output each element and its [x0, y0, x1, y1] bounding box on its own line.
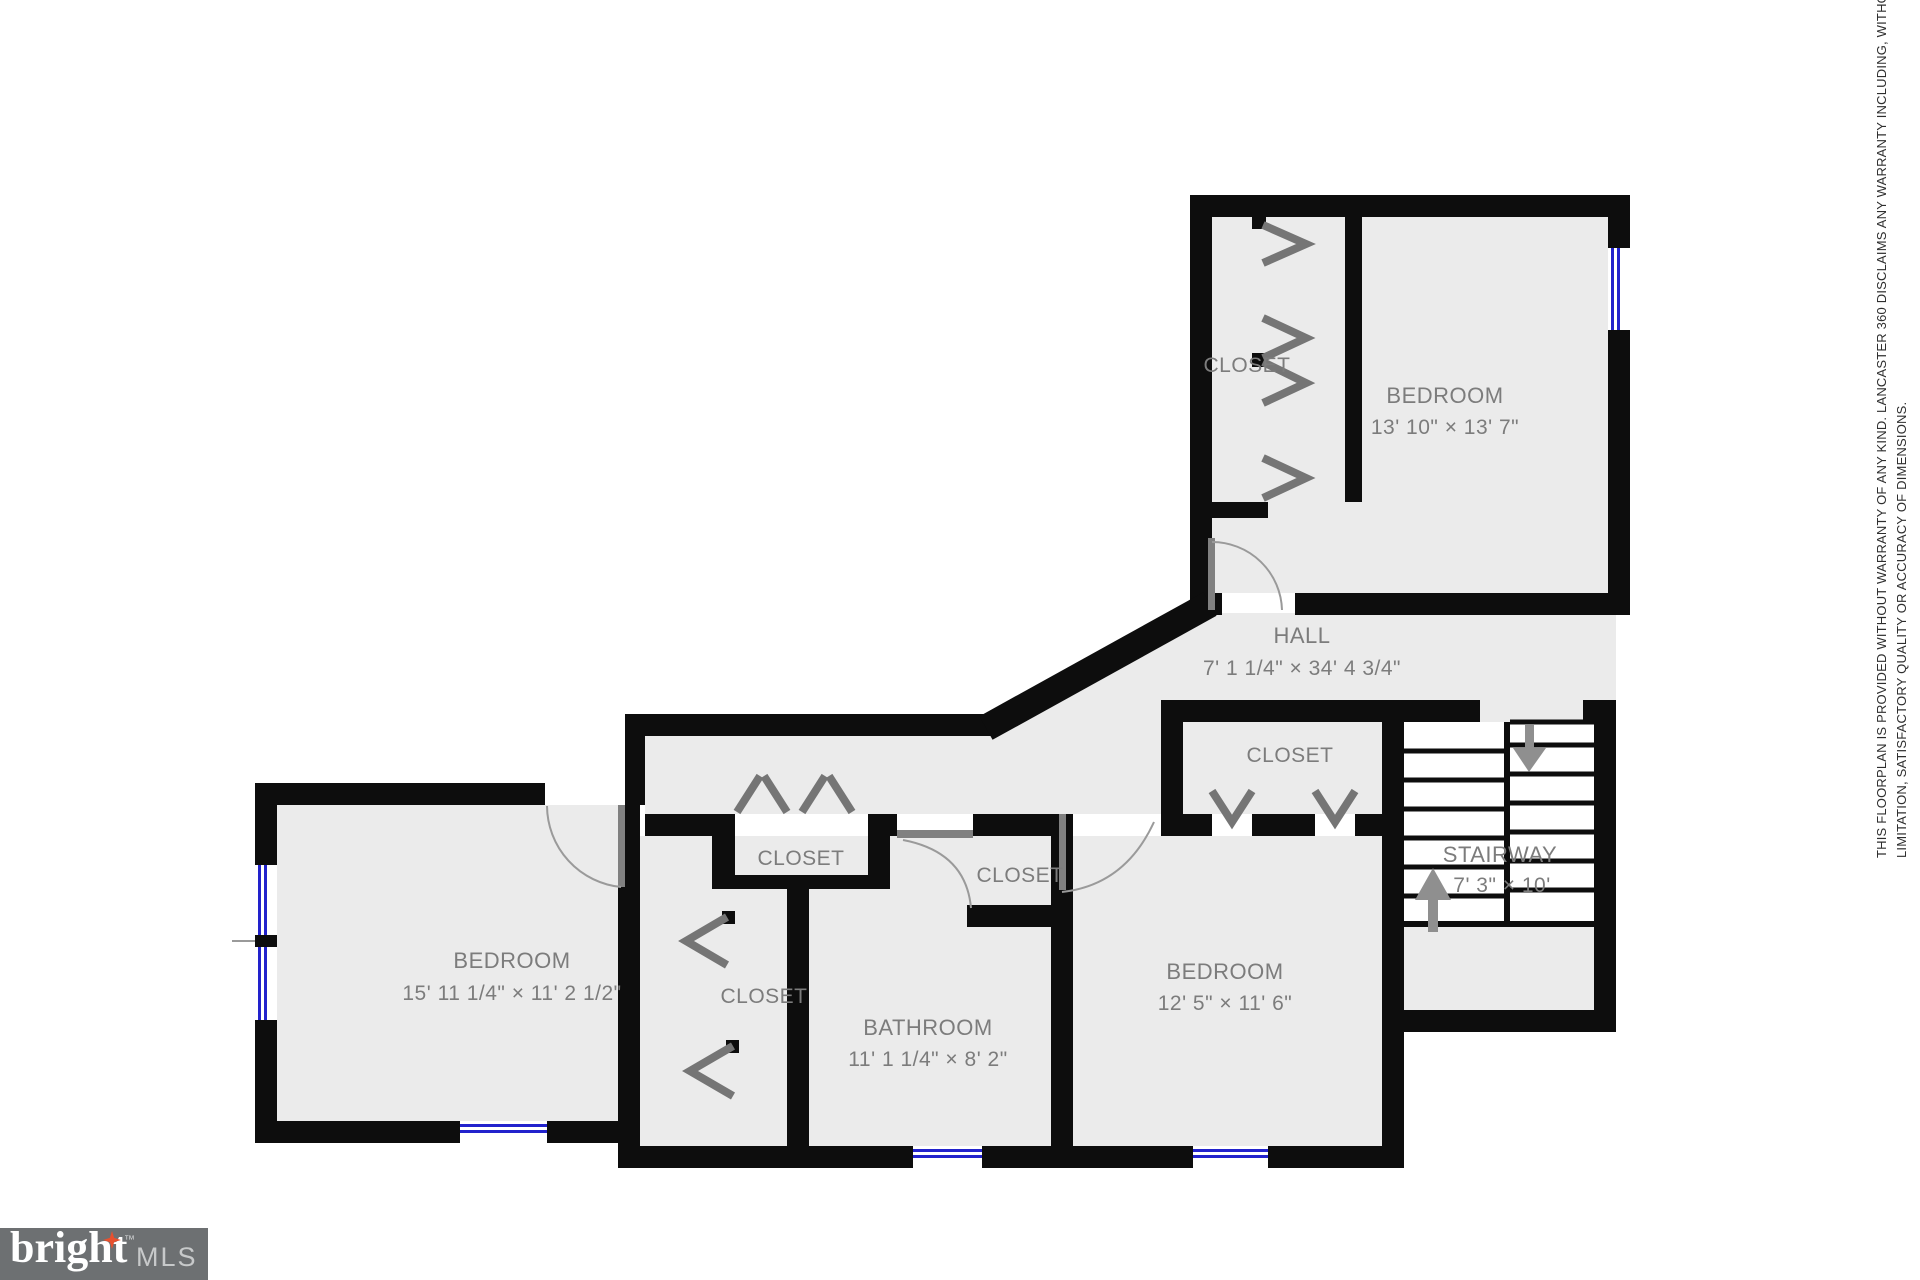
bright-mls-logo: bright ™ MLS	[0, 1228, 208, 1280]
disclaimer-line-1: THIS FLOORPLAN IS PROVIDED WITHOUT WARRA…	[1874, 0, 1889, 858]
trademark-symbol: ™	[124, 1234, 135, 1246]
room-name: BEDROOM	[453, 948, 570, 973]
room-dims: 7' 3" × 10'	[1453, 874, 1550, 897]
closet-label: CLOSET	[1246, 744, 1333, 767]
window	[913, 1146, 982, 1168]
door-leaf	[1208, 538, 1215, 610]
disclaimer: THIS FLOORPLAN IS PROVIDED WITHOUT WARRA…	[1874, 0, 1909, 858]
door-leaf	[618, 805, 625, 887]
window	[1193, 1146, 1268, 1168]
room-name: STAIRWAY	[1443, 842, 1557, 867]
closet-divider-wall	[1345, 217, 1362, 502]
window	[460, 1121, 547, 1143]
closet-label: CLOSET	[757, 847, 844, 870]
room-dims: 15' 11 1/4" × 11' 2 1/2"	[402, 982, 621, 1005]
logo-mls-text: MLS	[136, 1242, 198, 1273]
floor-stair-landing	[1404, 925, 1594, 1010]
window	[1608, 248, 1630, 330]
room-name: BATHROOM	[863, 1015, 992, 1040]
floorplan-page: BEDROOM 13' 10" × 13' 7" CLOSET HALL 7' …	[0, 0, 1920, 1280]
room-dims: 11' 1 1/4" × 8' 2"	[848, 1048, 1007, 1071]
room-name: BEDROOM	[1166, 959, 1283, 984]
pocket-door	[897, 830, 973, 838]
logo-wordmark: bright	[10, 1222, 127, 1273]
closet-label: CLOSET	[720, 985, 807, 1008]
room-floor-bedroom-3	[1073, 836, 1382, 1146]
room-dims: 7' 1 1/4" × 34' 4 3/4"	[1203, 657, 1401, 680]
room-name: HALL	[1273, 623, 1330, 648]
floorplan-svg: BEDROOM 13' 10" × 13' 7" CLOSET HALL 7' …	[0, 0, 1920, 1280]
floor-layer	[277, 217, 1616, 1146]
disclaimer-line-2: LIMITATION, SATISFACTORY QUALITY OR ACCU…	[1894, 402, 1909, 858]
closet-label: CLOSET	[976, 864, 1063, 887]
room-dims: 12' 5" × 11' 6"	[1158, 992, 1293, 1015]
room-dims: 13' 10" × 13' 7"	[1371, 416, 1519, 439]
room-name: BEDROOM	[1386, 383, 1503, 408]
closet-label: CLOSET	[1203, 354, 1290, 377]
